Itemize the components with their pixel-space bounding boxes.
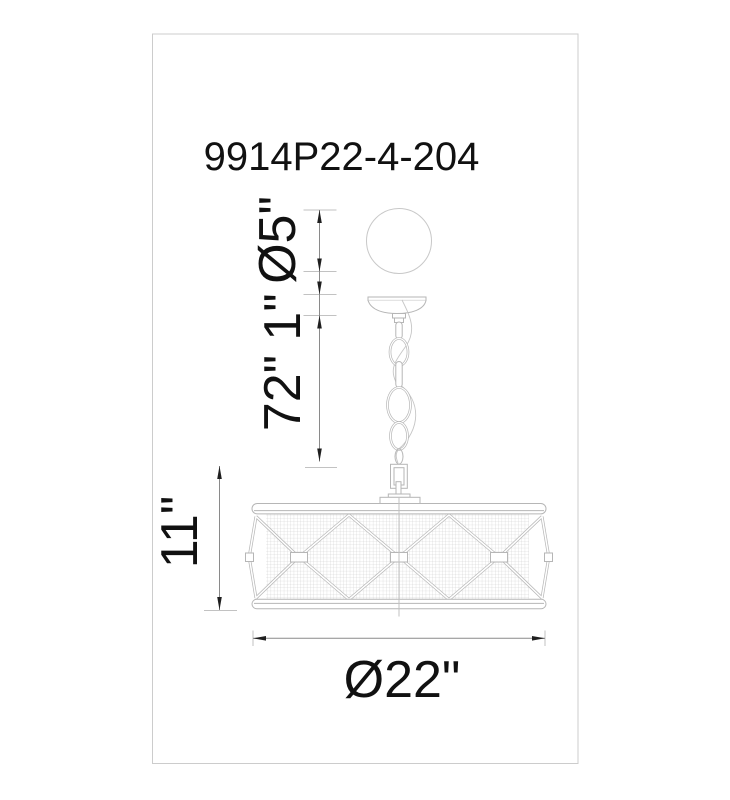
- drawing-canvas: 9914P22-4-204: [0, 0, 730, 800]
- sphere-ornament: [367, 209, 432, 274]
- drum-shade: [246, 497, 553, 617]
- shade-stem: [380, 464, 420, 503]
- dimension-labels: Ø5" 1" 72" 11" Ø22": [151, 196, 460, 709]
- canopy-collar: [393, 314, 406, 319]
- label-shade-height: 11": [151, 496, 209, 568]
- model-number: 9914P22-4-204: [204, 135, 480, 179]
- canopy-dome: [368, 300, 426, 313]
- canopy-plate: [368, 297, 426, 300]
- label-shade-diameter: Ø22": [344, 651, 461, 709]
- label-canopy-height: 1": [254, 293, 312, 340]
- hanging-chain: [388, 322, 411, 464]
- label-chain-length: 72": [254, 355, 312, 431]
- label-sphere-diameter: Ø5": [249, 196, 307, 284]
